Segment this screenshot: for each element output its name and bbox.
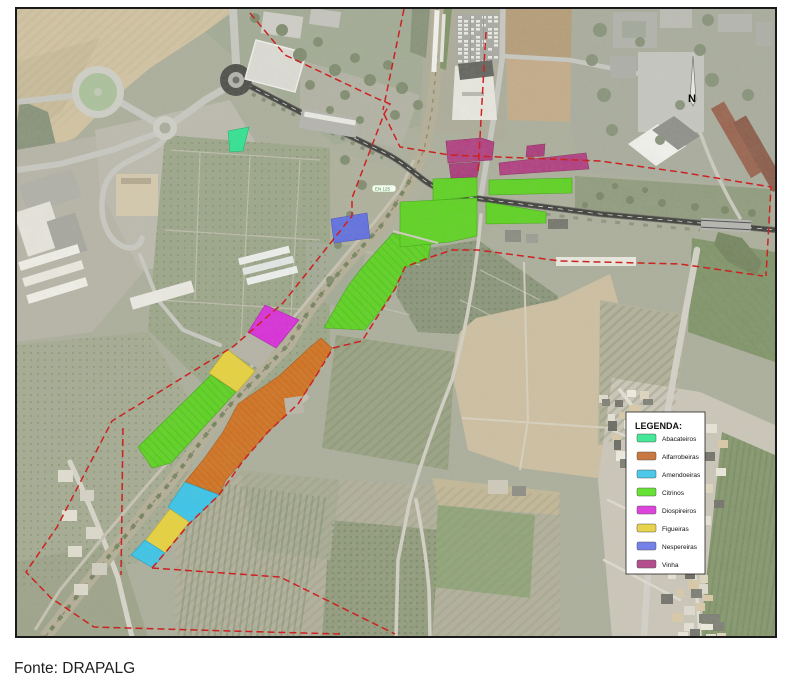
- svg-text:Citrinos: Citrinos: [662, 490, 685, 497]
- svg-text:Vinha: Vinha: [662, 562, 679, 569]
- svg-text:Amendoeiras: Amendoeiras: [662, 472, 701, 479]
- svg-text:EN 125: EN 125: [375, 187, 391, 192]
- svg-text:Alfarrobeiras: Alfarrobeiras: [662, 454, 700, 461]
- svg-text:Abacateiros: Abacateiros: [662, 436, 697, 443]
- svg-text:Nespereiras: Nespereiras: [662, 544, 698, 551]
- svg-text:Figueiras: Figueiras: [662, 526, 689, 533]
- svg-text:LEGENDA:: LEGENDA:: [635, 421, 682, 431]
- svg-text:N: N: [688, 93, 696, 105]
- svg-text:Diospireiros: Diospireiros: [662, 508, 697, 515]
- svg-text:Fonte: DRAPALG: Fonte: DRAPALG: [14, 660, 135, 677]
